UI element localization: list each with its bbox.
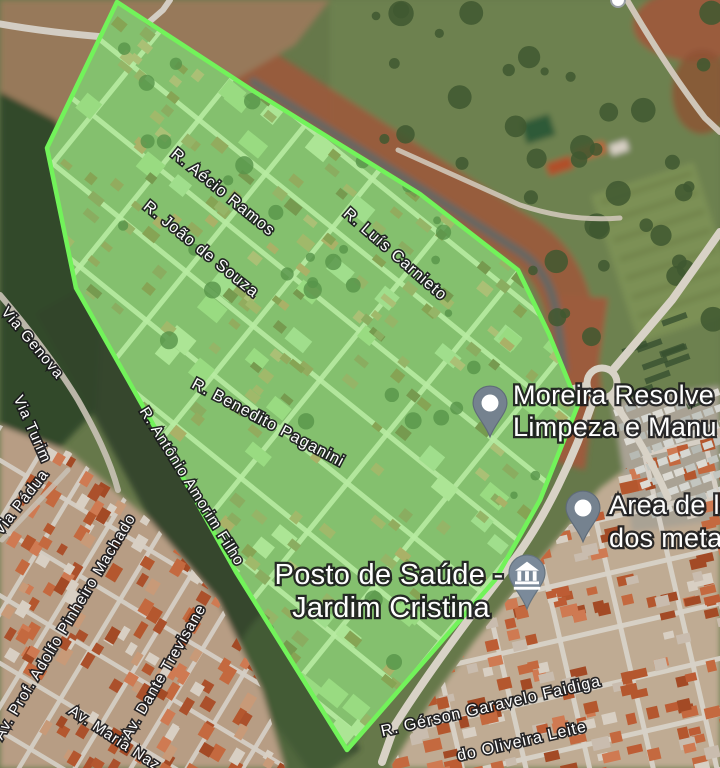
poi-label-area-line1[interactable]: Area de la (609, 490, 720, 520)
map-viewport[interactable]: R. Aécio Ramos R. João de Souza R. Luís … (0, 0, 720, 768)
satellite-map-canvas[interactable]: R. Aécio Ramos R. João de Souza R. Luís … (0, 0, 720, 768)
poi-label-moreira-line1[interactable]: Moreira Resolve (513, 380, 714, 410)
poi-label-area-line2[interactable]: dos meta (609, 523, 720, 553)
poi-label-posto-saude-line1[interactable]: Posto de Saúde - (275, 559, 504, 591)
pin-dot-icon (575, 500, 592, 517)
pin-dot-icon (482, 395, 499, 412)
poi-label-moreira-line2[interactable]: Limpeza e Manu (513, 412, 717, 442)
poi-label-posto-saude-line2[interactable]: Jardim Cristina (292, 592, 490, 624)
poi-dot-top-edge[interactable] (611, 0, 625, 7)
